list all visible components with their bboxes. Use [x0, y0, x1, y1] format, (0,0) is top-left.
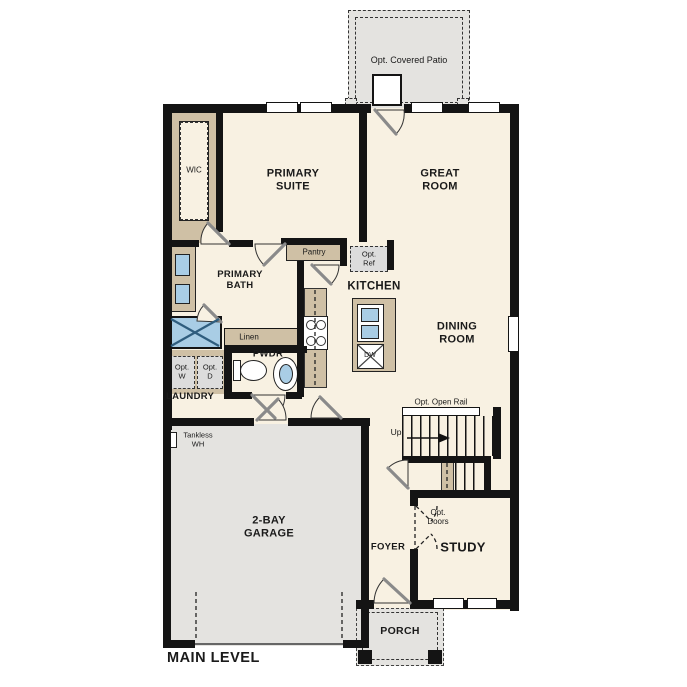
primary-bath-label: PRIMARY BATH: [217, 270, 263, 292]
great-room-label: GREAT ROOM: [420, 167, 459, 192]
tankless-wh-label: Tankless WH: [183, 431, 212, 448]
laundry-label: LAUNDRY: [166, 392, 214, 403]
opt-w-label: Opt. W: [175, 363, 189, 380]
opt-doors-label: Opt. Doors: [427, 508, 448, 526]
linen-label: Linen: [239, 332, 259, 341]
garage-label: 2-BAY GARAGE: [244, 514, 294, 539]
opt-open-rail-label: Opt. Open Rail: [415, 397, 468, 406]
floor-plan: Opt. Covered Patio WIC PRIMARY SUITE GRE…: [0, 0, 687, 687]
pantry-label: Pantry: [302, 247, 325, 256]
wic-label: WIC: [186, 165, 202, 174]
dishwasher-label: DW: [364, 352, 376, 360]
primary-suite-label: PRIMARY SUITE: [267, 167, 319, 192]
patio-label: Opt. Covered Patio: [371, 55, 448, 65]
plan-title: MAIN LEVEL: [167, 650, 260, 667]
foyer-label: FOYER: [371, 543, 405, 554]
kitchen-label: KITCHEN: [347, 280, 400, 293]
porch-label: PORCH: [380, 625, 419, 637]
opt-ref-label: Opt. Ref: [362, 250, 376, 267]
pwdr-label: PWDR: [253, 350, 283, 361]
door-swing-overlay: [0, 0, 687, 687]
up-label: Up: [391, 428, 402, 438]
dining-room-label: DINING ROOM: [437, 320, 477, 345]
study-label: STUDY: [440, 541, 486, 556]
opt-d-label: Opt. D: [203, 363, 217, 380]
